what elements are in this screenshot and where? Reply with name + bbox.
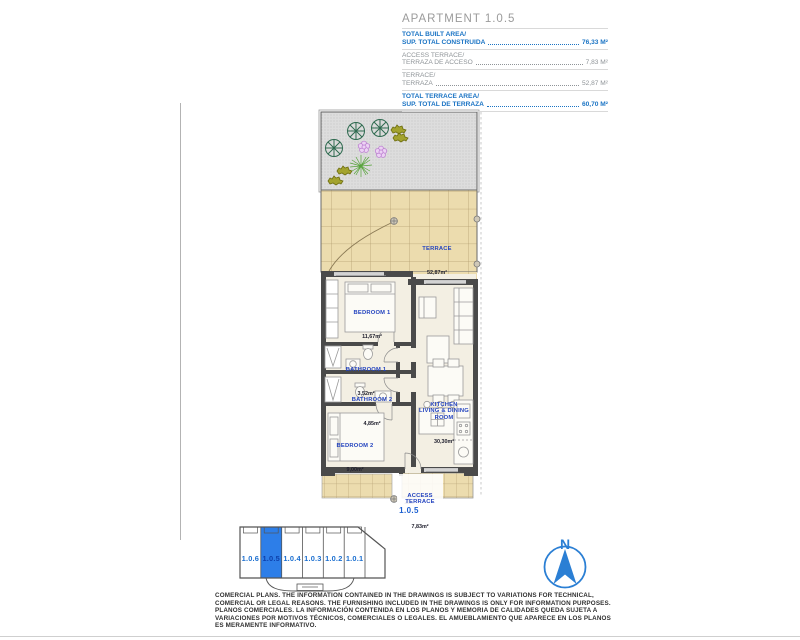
- compass-north-label: N: [560, 536, 570, 552]
- dot-leader: [488, 43, 579, 45]
- keyplan-unit-label: 1.0.1: [346, 554, 363, 563]
- tree-icon: [348, 123, 365, 140]
- disclaimer-line: COMERCIAL OR LEGAL REASONS. THE FURNISHI…: [215, 600, 607, 608]
- row-label-es: SUP. TOTAL CONSTRUIDA: [402, 39, 485, 47]
- row-label-es: TERRAZA: [402, 80, 433, 88]
- keyplan-highlight-cell: [261, 527, 282, 578]
- floor-plan-drawing: 1.0.6 1.0.5 1.0.4 1.0.3 1.0.2 1.0.1 N: [0, 0, 800, 640]
- tree-icon: [372, 120, 389, 137]
- plan-sheet: 1.0.6 1.0.5 1.0.4 1.0.3 1.0.2 1.0.1 N AP…: [0, 0, 800, 640]
- tree-icon: [326, 140, 343, 157]
- dot-leader: [436, 84, 579, 86]
- summary-row-total-terrace: TOTAL TERRACE AREA/ SUP. TOTAL DE TERRAZ…: [402, 90, 608, 112]
- disclaimer-line: VARIACIONES POR MOTIVOS TÉCNICOS, COMERC…: [215, 615, 607, 623]
- summary-row-access-terrace: ACCESS TERRACE/ TERRAZA DE ACCESO7,83 M²: [402, 49, 608, 70]
- dot-leader: [487, 105, 579, 107]
- row-label-es: TERRAZA DE ACCESO: [402, 59, 473, 67]
- terrace-area: [321, 190, 480, 280]
- row-label-es: SUP. TOTAL DE TERRAZA: [402, 101, 484, 109]
- keyplan-unit-label: 1.0.2: [325, 554, 342, 563]
- disclaimer-line: PLANOS COMERCIALES. LA INFORMACIÓN CONTE…: [215, 607, 607, 615]
- disclaimer-line: COMERCIAL PLANS. THE INFORMATION CONTAIN…: [215, 592, 607, 600]
- row-value: 52,87 M²: [582, 80, 608, 88]
- summary-row-total-built: TOTAL BUILT AREA/ SUP. TOTAL CONSTRUIDA7…: [402, 28, 608, 49]
- keyplan-unit-label: 1.0.3: [304, 554, 321, 563]
- garden-area: [319, 110, 479, 192]
- north-arrow-icon: N: [545, 536, 586, 588]
- disclaimer-line: ES MERAMENTE INFORMATIVO.: [215, 622, 607, 630]
- keyplan: 1.0.6 1.0.5 1.0.4 1.0.3 1.0.2 1.0.1: [240, 527, 385, 591]
- keyplan-unit-label: 1.0.6: [242, 554, 259, 563]
- row-value: 76,33 M²: [582, 39, 608, 47]
- unit-pointer-icon: [404, 498, 414, 504]
- dot-leader: [476, 63, 583, 65]
- keyplan-unit-label: 1.0.4: [283, 554, 301, 563]
- summary-row-terrace: TERRACE/ TERRAZA52,87 M²: [402, 69, 608, 90]
- row-label-en: TOTAL BUILT AREA/: [402, 31, 608, 39]
- row-value: 7,83 M²: [586, 59, 608, 67]
- area-summary-panel: APARTMENT 1.0.5 TOTAL BUILT AREA/ SUP. T…: [402, 13, 608, 112]
- apartment-title: APARTMENT 1.0.5: [402, 13, 608, 25]
- row-label-en: TOTAL TERRACE AREA/: [402, 93, 608, 101]
- row-label-en: ACCESS TERRACE/: [402, 52, 608, 60]
- legal-disclaimer: COMERCIAL PLANS. THE INFORMATION CONTAIN…: [215, 592, 607, 630]
- row-label-en: TERRACE/: [402, 72, 608, 80]
- access-terrace-area: [322, 473, 473, 502]
- page-bottom-rule: [0, 636, 800, 637]
- keyplan-unit-label-highlighted: 1.0.5: [262, 554, 279, 563]
- unit-number-label: 1.0.5: [389, 506, 429, 515]
- row-value: 60,70 M²: [582, 101, 608, 109]
